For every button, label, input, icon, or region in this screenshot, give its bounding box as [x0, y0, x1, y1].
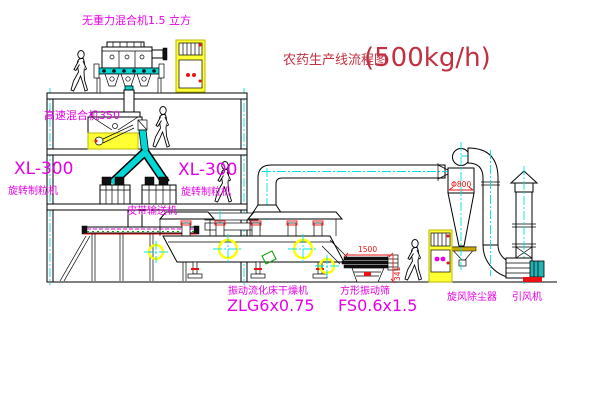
granulator-right: [142, 177, 176, 204]
dimension-sieve-length: 1500: [358, 245, 377, 254]
control-cabinet-top: [176, 40, 205, 92]
worker-figure: [153, 107, 170, 148]
label-high-speed-mixer: 高速混合机350: [44, 110, 120, 121]
drawing-canvas: 1500 341 Φ800 农药生产线流程图 (500kg/h) 无重力混合机1…: [0, 0, 600, 403]
fan-motor: [530, 261, 544, 277]
label-sieve-model: FS0.6x1.5: [338, 298, 417, 314]
worker-figure: [71, 51, 88, 92]
label-granulator-right-name: 旋转制粒机: [181, 188, 231, 198]
control-cabinet-bottom: [429, 230, 452, 282]
granulator-left: [100, 177, 130, 204]
diagram-title-capacity: (500kg/h): [364, 45, 491, 71]
label-gravity-mixer: 无重力混合机1.5 立方: [82, 15, 191, 26]
dimension-sieve-height: 341: [393, 266, 402, 281]
gravity-free-mixer: [94, 42, 167, 113]
dimension-cyclone-diameter: Φ800: [451, 180, 471, 189]
label-granulator-left-model: XL-300: [14, 161, 73, 178]
dryer-legs: [188, 262, 327, 278]
label-fan: 引风机: [512, 293, 542, 303]
exhaust-duct: [250, 163, 456, 220]
label-belt-conveyor: 皮带输送机: [127, 207, 177, 217]
dryer-nozzles: [181, 221, 323, 236]
label-granulator-right-model: XL-300: [178, 162, 237, 179]
fluid-bed-dryer: [160, 212, 344, 278]
label-dryer-model: ZLG6x0.75: [227, 298, 315, 314]
induced-draft-fan: [506, 258, 544, 282]
label-granulator-left-name: 旋转制粒机: [8, 187, 58, 197]
label-cyclone: 旋风除尘器: [447, 293, 497, 303]
worker-figure: [405, 240, 422, 281]
